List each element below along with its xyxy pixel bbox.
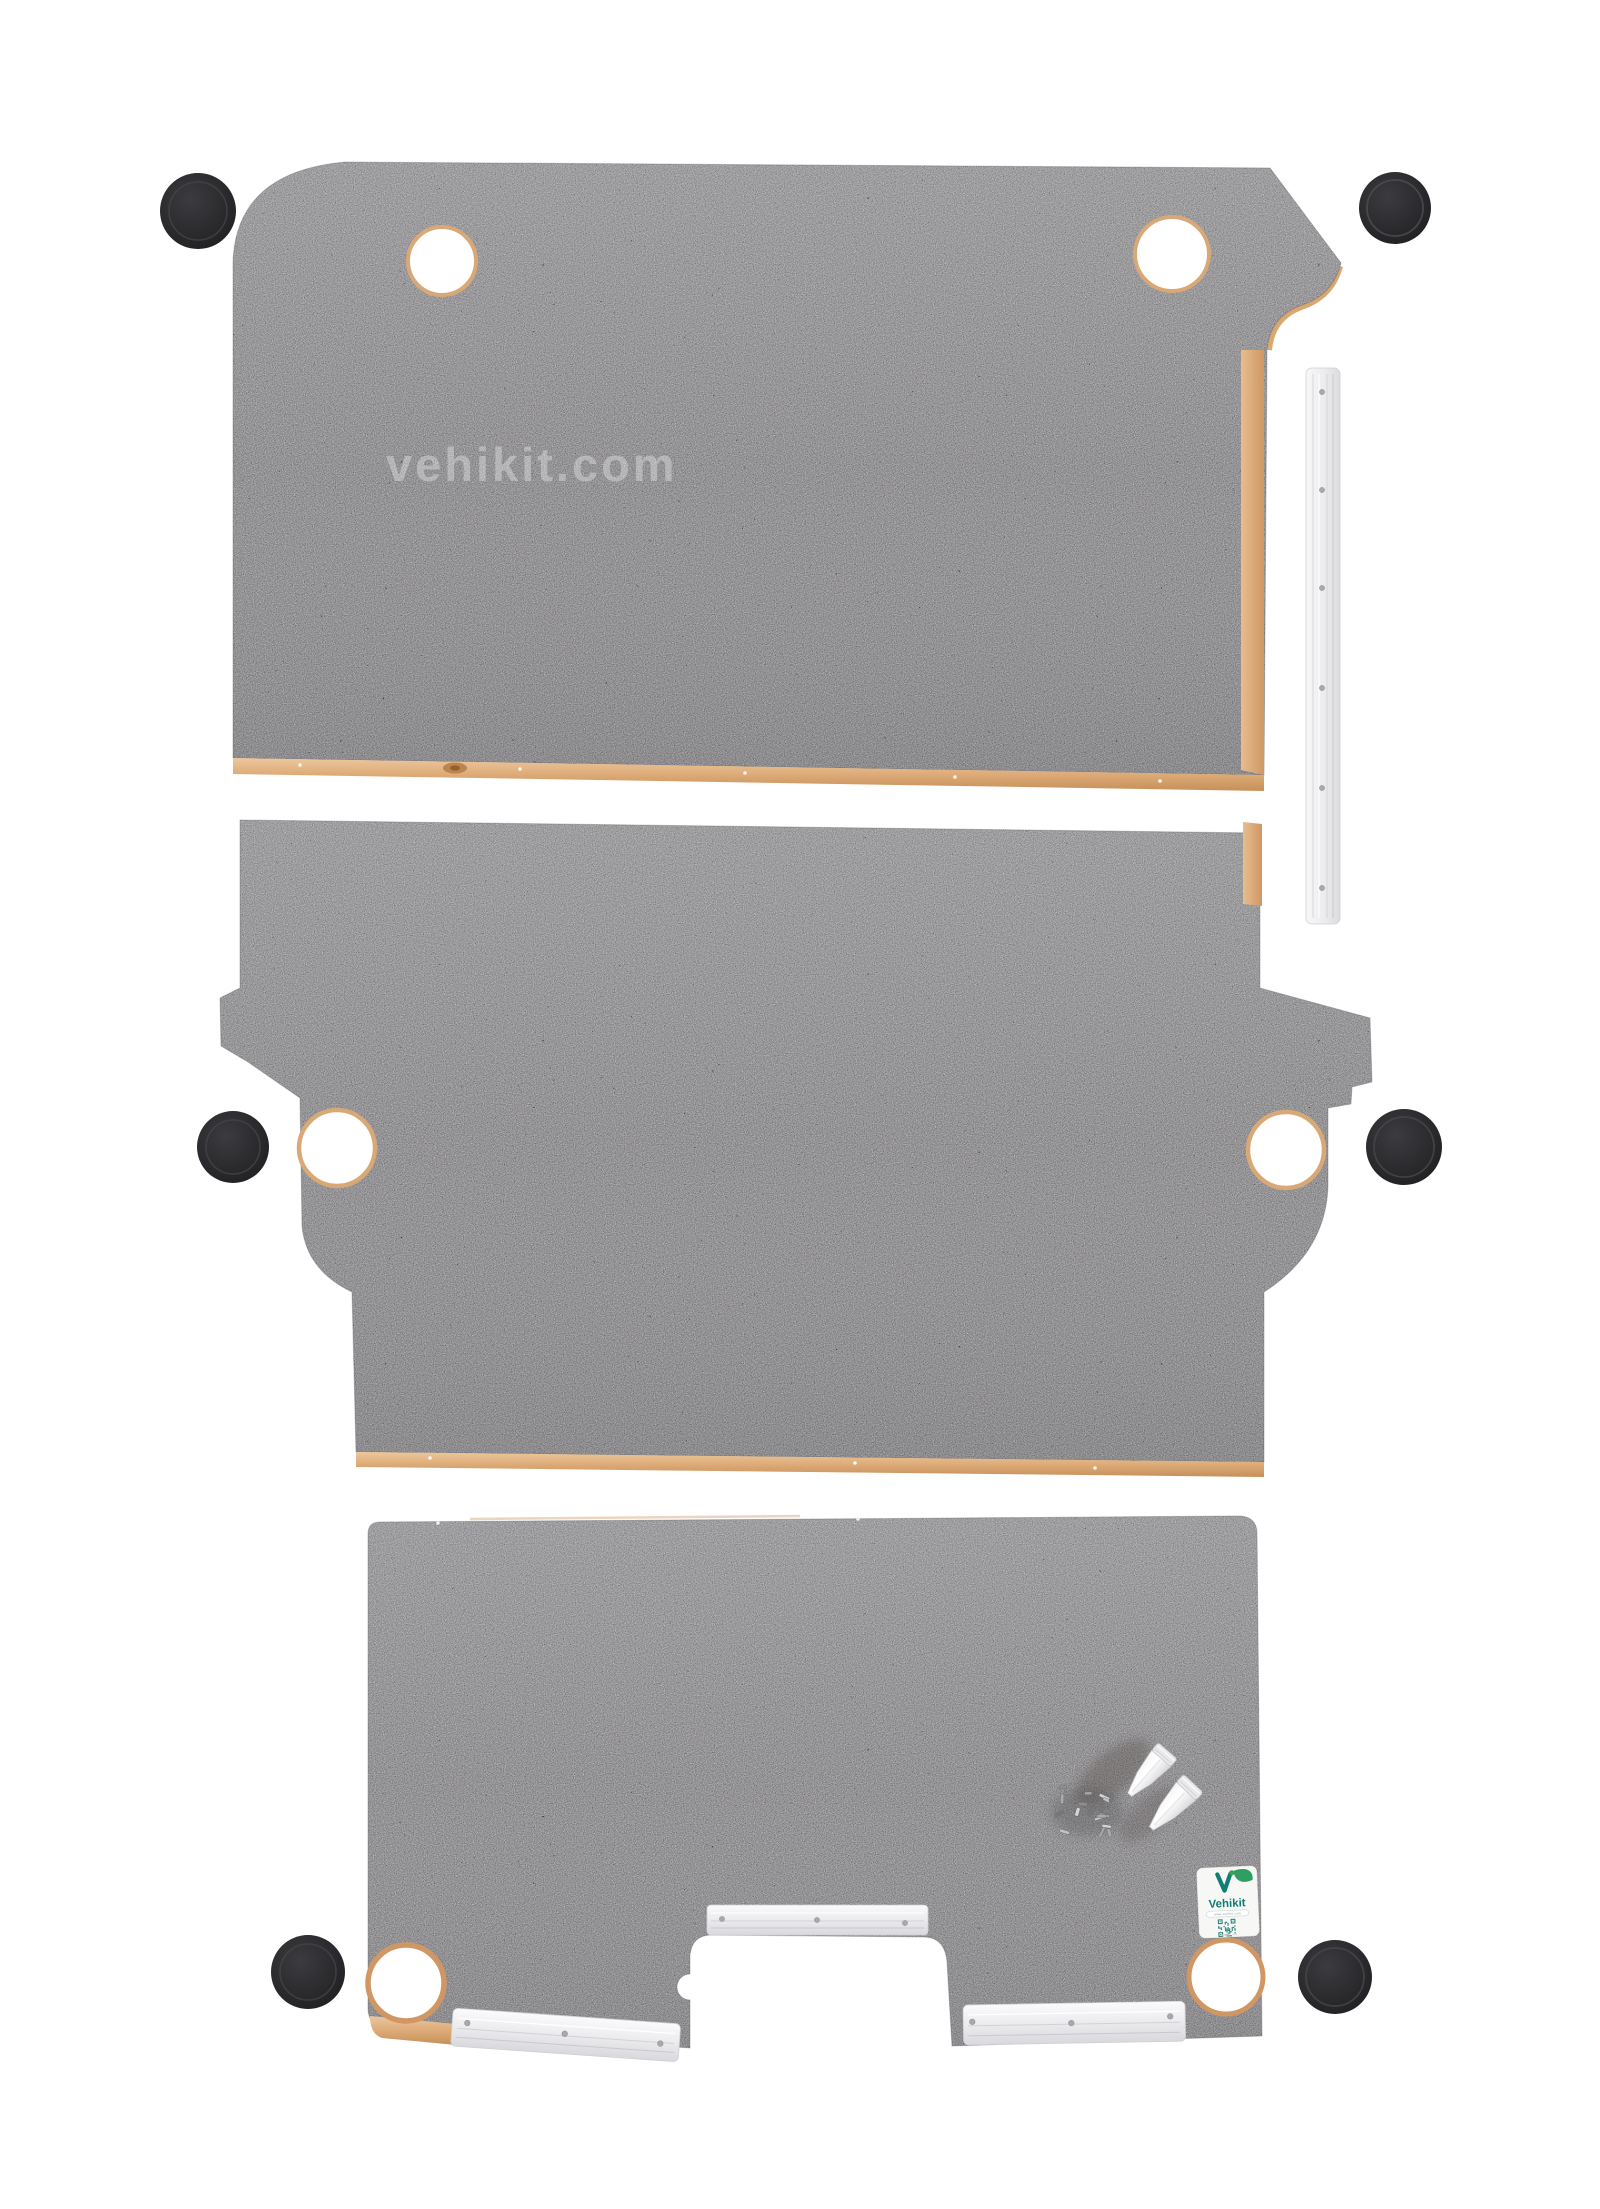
bolt-hole — [1189, 1940, 1263, 2014]
brand-name: Vehikit — [1208, 1897, 1246, 1911]
watermark: vehikit.com — [386, 438, 678, 491]
screw-cap — [1366, 1109, 1442, 1185]
aluminium-strip-bottom-right — [963, 2001, 1186, 2045]
product-photo-canvas: vehikit.com — [0, 0, 1600, 2209]
bolt-hole — [1248, 1112, 1324, 1188]
plywood-knot-core — [450, 765, 460, 770]
plywood-edge-panel3-top — [470, 1516, 800, 1519]
screw-cap — [197, 1111, 269, 1183]
brand-label: Vehikit www.vehikit.com — [1195, 1865, 1260, 1940]
plywood-edge-panel2-right-top — [1243, 822, 1262, 906]
bolt-hole — [368, 1945, 444, 2021]
bolt-hole — [299, 1110, 375, 1186]
product-photo: vehikit.com — [0, 0, 1600, 2209]
bolt-hole — [1135, 217, 1209, 291]
bolt-hole — [408, 227, 476, 295]
aluminium-strip-notch — [707, 1905, 928, 1935]
screw-cap — [1298, 1940, 1372, 2014]
screw-cap — [160, 173, 236, 249]
screw-cap — [271, 1935, 345, 2009]
aluminium-strip-vertical — [1306, 368, 1340, 924]
plywood-edge-panel1-right — [1241, 350, 1264, 775]
screw-cap — [1359, 172, 1431, 244]
